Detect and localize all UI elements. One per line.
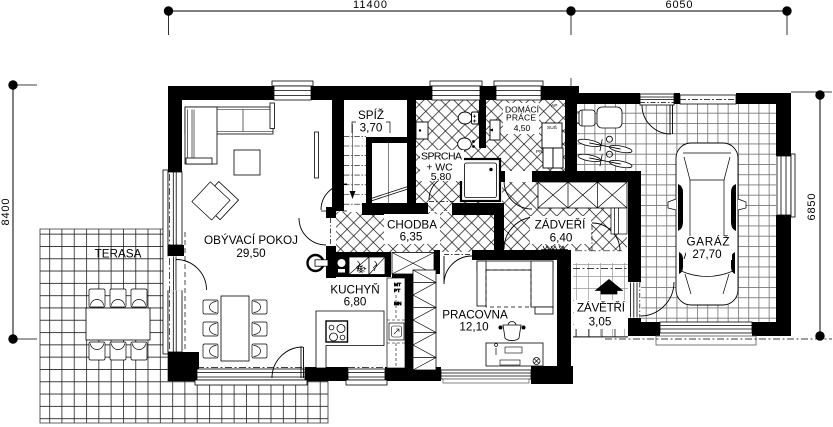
svg-text:ZÁDVEŘÍ: ZÁDVEŘÍ (535, 219, 586, 232)
svg-text:TERASA: TERASA (95, 248, 142, 261)
svg-text:PT: PT (394, 288, 400, 294)
svg-text:PRÁCE: PRÁCE (506, 113, 536, 123)
svg-text:11400: 11400 (353, 0, 387, 11)
svg-text:6,35: 6,35 (400, 231, 423, 244)
svg-text:12,10: 12,10 (459, 321, 489, 334)
svg-text:6,80: 6,80 (344, 296, 367, 309)
svg-text:27,70: 27,70 (692, 248, 722, 261)
svg-text:MN: MN (394, 301, 402, 307)
svg-text:4,50: 4,50 (514, 123, 531, 133)
svg-text:3,05: 3,05 (589, 316, 612, 329)
svg-text:PR: PR (536, 149, 543, 155)
svg-text:29,50: 29,50 (236, 247, 266, 260)
svg-text:6850: 6850 (806, 194, 818, 221)
svg-text:5,80: 5,80 (431, 171, 452, 183)
svg-text:8400: 8400 (0, 199, 12, 226)
svg-text:6050: 6050 (666, 0, 693, 11)
svg-text:SUŠ: SUŠ (547, 124, 557, 131)
svg-text:AP: AP (551, 103, 557, 109)
svg-text:SPÍŽ: SPÍŽ (358, 109, 384, 122)
svg-text:3,70: 3,70 (360, 122, 383, 135)
svg-text:6,40: 6,40 (550, 232, 573, 245)
svg-text:MT: MT (394, 282, 401, 288)
svg-text:GARÁŽ: GARÁŽ (687, 236, 730, 249)
svg-text:OBÝVACÍ POKOJ: OBÝVACÍ POKOJ (204, 234, 298, 247)
svg-text:ZÁVĚTŘÍ: ZÁVĚTŘÍ (577, 302, 626, 315)
